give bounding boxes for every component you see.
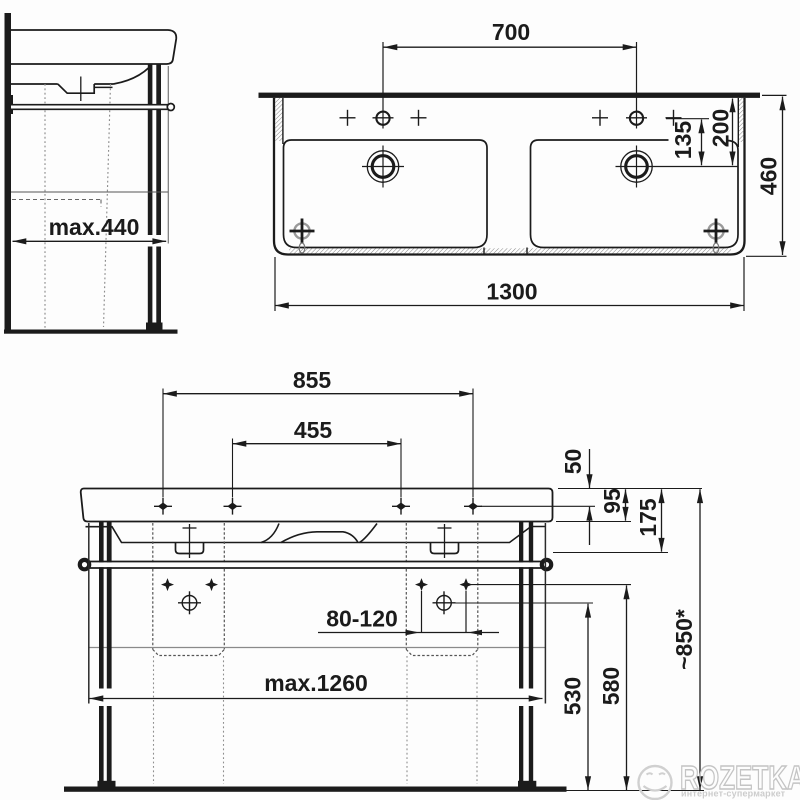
svg-text:50: 50 — [560, 449, 586, 475]
svg-text:200: 200 — [708, 109, 734, 147]
svg-text:~850*: ~850* — [671, 609, 697, 670]
svg-text:80-120: 80-120 — [326, 606, 398, 632]
svg-text:max.1260: max.1260 — [264, 670, 368, 696]
svg-text:175: 175 — [635, 498, 661, 537]
svg-text:455: 455 — [294, 417, 333, 443]
svg-text:580: 580 — [598, 667, 624, 705]
svg-text:max.440: max.440 — [49, 214, 140, 240]
svg-text:интернет-супермаркет: интернет-супермаркет — [681, 789, 786, 799]
svg-text:855: 855 — [293, 367, 332, 393]
svg-text:460: 460 — [756, 157, 782, 195]
svg-text:135: 135 — [670, 121, 696, 160]
svg-text:700: 700 — [492, 19, 530, 45]
svg-text:1300: 1300 — [486, 279, 537, 305]
svg-text:95: 95 — [599, 488, 625, 514]
svg-text:530: 530 — [560, 677, 586, 715]
